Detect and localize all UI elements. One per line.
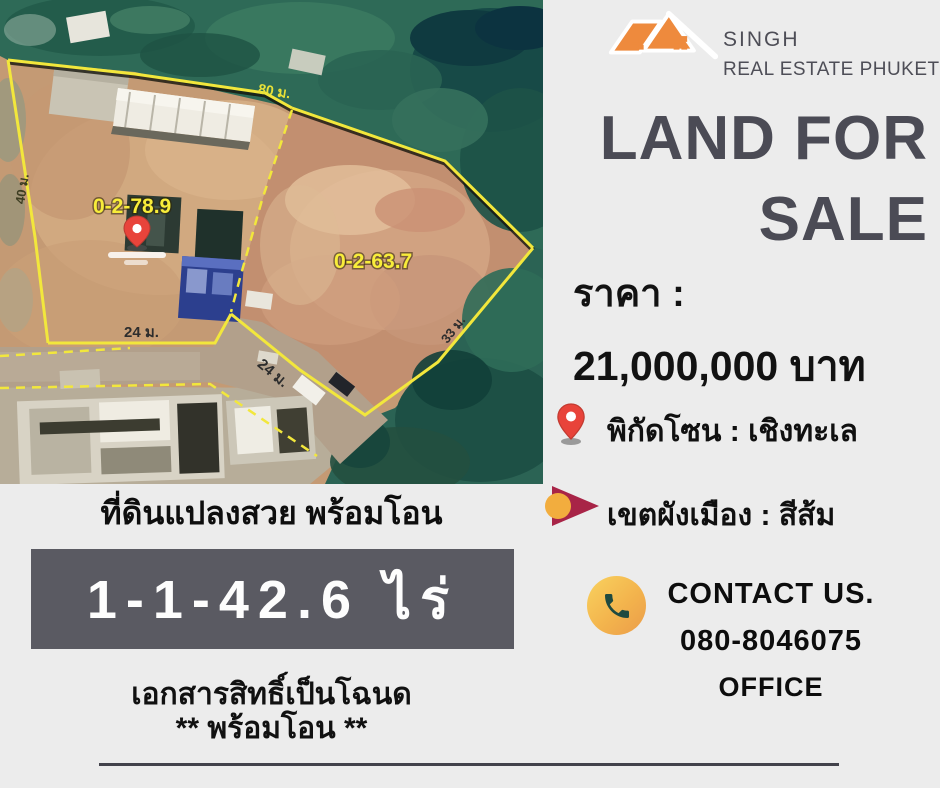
area-badge: 1-1-42.6 ไร่	[31, 549, 514, 649]
dim-bottom-left-label: 24 ม.	[124, 324, 159, 341]
blue-roof-building	[178, 256, 244, 322]
land-sale-poster: 0-2-78.9 0-2-63.7 80 ม. 40 ม. 24 ม. 24 ม…	[0, 0, 940, 788]
contact-phone: 080-8046075	[653, 625, 889, 658]
plot1-area-label: 0-2-78.9	[93, 195, 171, 218]
satellite-map: 0-2-78.9 0-2-63.7 80 ม. 40 ม. 24 ม. 24 ม…	[0, 0, 543, 484]
construction-site	[17, 394, 225, 484]
plot2-area-label: 0-2-63.7	[334, 250, 412, 273]
phone-icon	[601, 590, 633, 622]
contact-office: OFFICE	[653, 672, 889, 703]
brand-logo-icon	[605, 8, 721, 68]
sale-title: LAND FOR SALE	[600, 98, 928, 260]
feature-zone: เขตผังเมือง : สีส้ม	[607, 492, 835, 539]
price-label: ราคา :	[573, 262, 866, 323]
sale-title-line2: SALE	[600, 179, 928, 260]
contact-heading: CONTACT US.	[653, 578, 889, 611]
location-pin-icon	[556, 400, 586, 448]
zone-arrow-icon	[543, 483, 601, 529]
price-value: 21,000,000 บาท	[573, 334, 866, 399]
footer-rule	[99, 763, 839, 766]
phone-circle-icon	[587, 576, 646, 635]
land-caption: ที่ดินแปลงสวย พร้อมโอน	[0, 488, 543, 539]
brand-subtitle: REAL ESTATE PHUKET	[723, 59, 940, 81]
brand-name: SINGH	[723, 28, 940, 52]
deed-note-2: ** พร้อมโอน **	[0, 705, 543, 752]
feature-location: พิกัดโซน : เชิงทะเล	[607, 408, 858, 455]
sale-title-line1: LAND FOR	[600, 98, 928, 179]
satellite-map-svg: 0-2-78.9 0-2-63.7 80 ม. 40 ม. 24 ม. 24 ม…	[0, 0, 543, 484]
